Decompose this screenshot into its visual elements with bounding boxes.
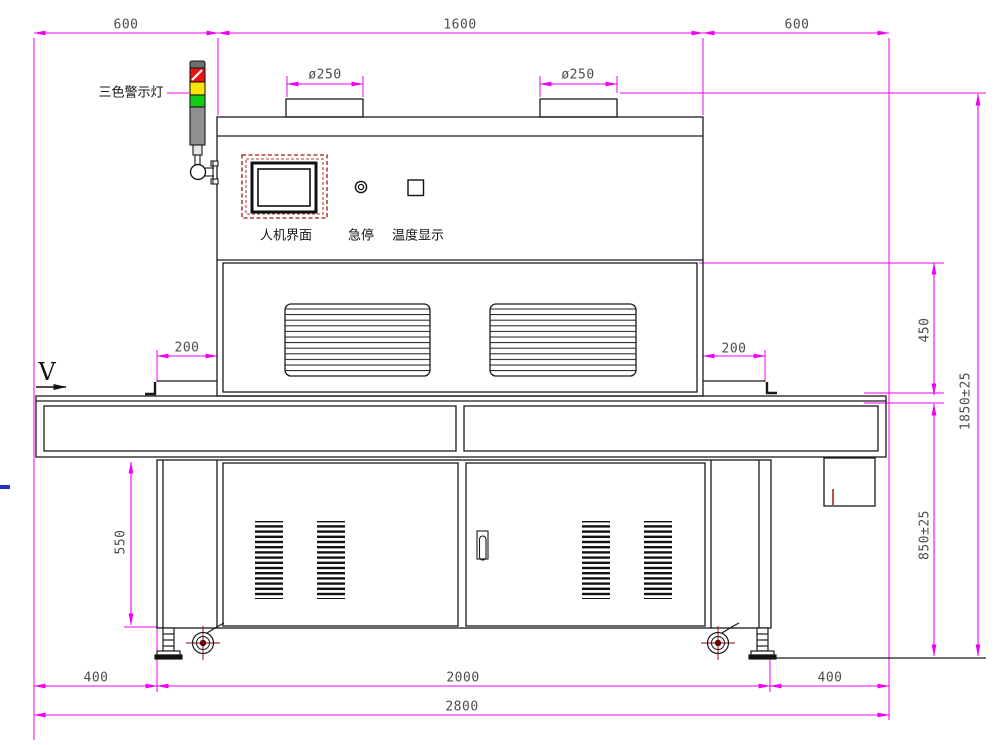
label-direction-v: V: [38, 360, 55, 384]
dim-total-height: 1850±25: [960, 372, 973, 430]
label-hmi: 人机界面: [260, 230, 312, 243]
light-mount-ball: [191, 165, 206, 180]
light-cap: [190, 61, 205, 68]
dim-hood-height: 450: [919, 318, 932, 343]
label-warning-light: 三色警示灯: [98, 87, 163, 100]
dim-bottom-left: 400: [84, 672, 109, 685]
conveyor-table: [36, 396, 886, 457]
vent-left: [286, 99, 363, 117]
control-panel: [242, 155, 424, 218]
door-handle: [477, 531, 488, 560]
warning-light-tower: [190, 61, 218, 184]
engineering-drawing: 600 1600 600 ø250 ø250 三色警示灯 人机界面 急停 温度显…: [0, 0, 997, 745]
vent-right: [540, 99, 617, 117]
drawing-linework: [0, 0, 997, 745]
light-green-segment: [190, 95, 205, 107]
dim-under-table-height: 550: [115, 530, 128, 555]
oven-louver-right: [490, 304, 636, 376]
side-bracket-box: [824, 458, 875, 506]
emergency-stop-button[interactable]: [355, 181, 366, 192]
light-neck: [193, 145, 202, 155]
dim-table-height: 850±25: [919, 510, 932, 560]
leveling-foot-left: [155, 628, 182, 659]
dim-vent-right: ø250: [561, 69, 594, 82]
dim-top-right: 600: [785, 19, 810, 32]
dim-inlet-right: 200: [722, 343, 747, 356]
temperature-display-window: [408, 180, 424, 196]
leveling-foot-right: [749, 628, 776, 659]
light-yellow-segment: [190, 82, 205, 95]
door-louver-1: [255, 521, 283, 599]
door-louver-2: [317, 521, 345, 599]
dim-inlet-left: 200: [175, 342, 200, 355]
outlet-end-bracket: [767, 382, 777, 393]
door-louver-4: [644, 521, 672, 599]
table-panel-left: [44, 406, 456, 451]
dim-total-width: 2800: [445, 701, 478, 714]
table-panel-right: [464, 406, 878, 451]
light-stem: [195, 155, 200, 165]
hmi-screen[interactable]: [258, 169, 310, 206]
dim-vent-left: ø250: [308, 69, 341, 82]
label-emergency-stop: 急停: [348, 230, 374, 243]
dim-top-center: 1600: [443, 19, 476, 32]
inlet-end-bracket: [145, 382, 155, 394]
dim-bottom-right: 400: [818, 672, 843, 685]
light-body: [190, 107, 205, 145]
cabinet: [157, 460, 771, 628]
label-temperature-display: 温度显示: [392, 230, 444, 243]
blue-reference-mark: [0, 485, 10, 489]
oven-louver-left: [285, 304, 430, 376]
extension-lines: [34, 38, 986, 740]
dim-top-left: 600: [114, 19, 139, 32]
emergency-stop-button-center: [358, 184, 363, 189]
light-mount-bracket: [205, 161, 218, 184]
machine-outline: [36, 99, 986, 658]
door-louver-3: [582, 521, 610, 599]
dim-bottom-center: 2000: [446, 672, 479, 685]
